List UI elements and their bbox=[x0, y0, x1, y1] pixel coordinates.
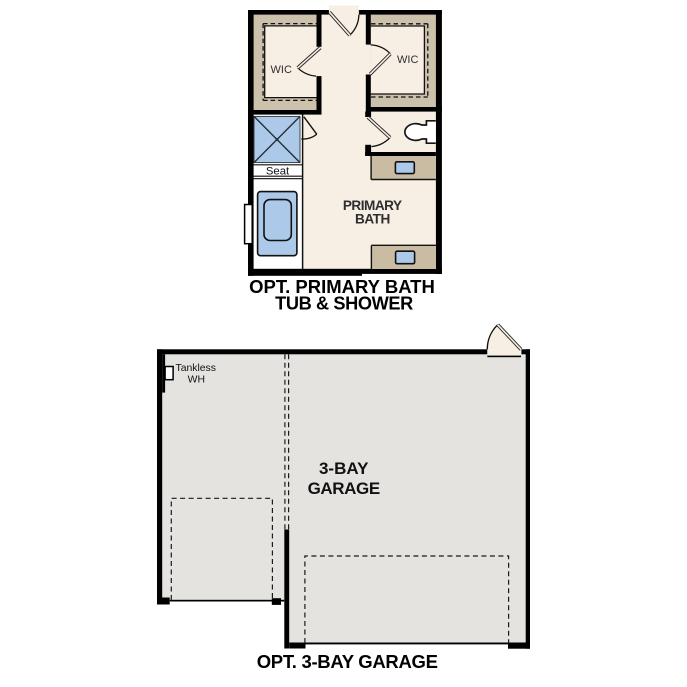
svg-text:GARAGE: GARAGE bbox=[308, 479, 380, 498]
svg-text:OPT. 3-BAY GARAGE: OPT. 3-BAY GARAGE bbox=[257, 651, 438, 672]
svg-text:3-BAY: 3-BAY bbox=[319, 459, 369, 478]
svg-text:WIC: WIC bbox=[271, 64, 292, 76]
svg-text:Tankless: Tankless bbox=[176, 363, 216, 374]
svg-text:Seat: Seat bbox=[266, 166, 290, 178]
svg-text:WH: WH bbox=[188, 375, 205, 386]
svg-text:WIC: WIC bbox=[397, 54, 418, 66]
svg-text:TUB & SHOWER: TUB & SHOWER bbox=[275, 294, 413, 314]
svg-text:BATH: BATH bbox=[355, 212, 390, 227]
